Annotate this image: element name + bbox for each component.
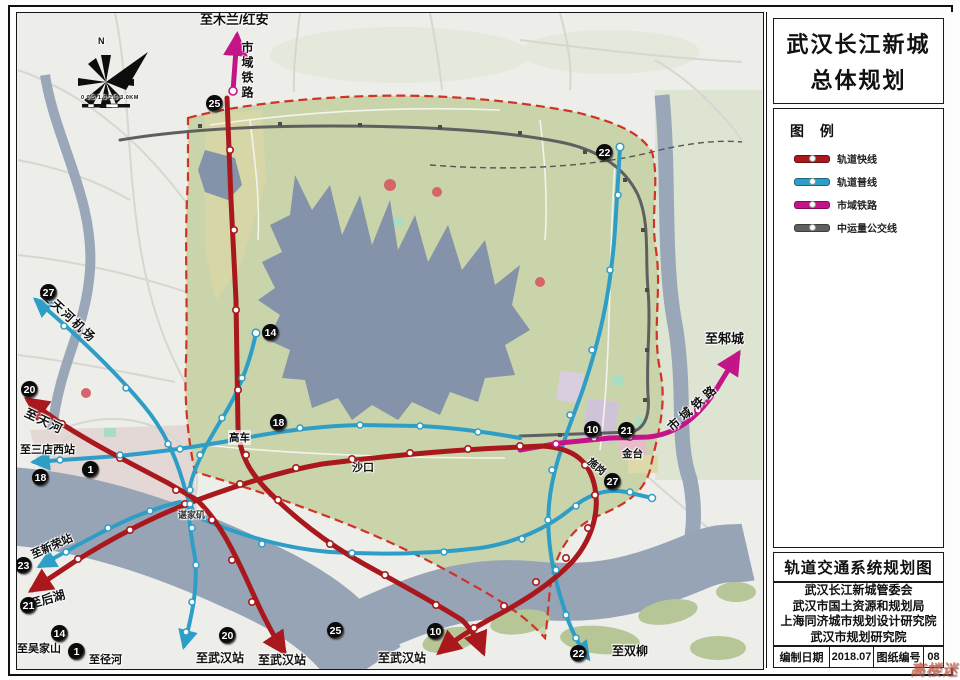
line-badge-25: 25: [206, 95, 223, 112]
legend-label-brt: 中运量公交线: [837, 220, 897, 235]
legend-box: 图 例 轨道快线 轨道普线 市域铁路 中运量公交线: [773, 108, 944, 548]
watermark: 高楼迷: [910, 659, 958, 680]
map-label-chenjiaji: 谌家矶: [178, 508, 205, 521]
map-label-to-wuhan-station-2: 至武汉站: [258, 651, 306, 668]
date-label: 编制日期: [774, 647, 830, 667]
line-badge-27b: 27: [604, 473, 621, 490]
map-label-gaoche: 高车: [228, 430, 251, 445]
legend-label-regional-rail: 市域铁路: [837, 197, 877, 212]
line-badge-22: 22: [596, 144, 613, 161]
line-badge-20: 20: [21, 381, 38, 398]
drawing-title-box: 轨道交通系统规划图: [773, 552, 944, 582]
organizations-box: 武汉长江新城管委会 武汉市国土资源和规划局 上海同济城市规划设计研究院 武汉市规…: [773, 582, 944, 646]
line-badge-1: 1: [82, 461, 99, 478]
line-badge-14b: 14: [51, 625, 68, 642]
map-label-to-sandianxi: 至三店西站: [20, 441, 75, 457]
legend-label-rail-regular: 轨道普线: [837, 174, 877, 189]
map-label-to-shuangliu: 至双柳: [612, 642, 648, 659]
organization-1: 武汉长江新城管委会: [804, 583, 912, 599]
line-badge-10: 10: [584, 421, 601, 438]
map-label-to-jinghe: 至径河: [89, 651, 122, 667]
station-dot-icon: [809, 178, 816, 185]
map-label-to-mulan-hongan: 至木兰/红安: [200, 12, 269, 28]
map-label-jintai: 金台: [622, 446, 643, 461]
line-badge-21: 21: [20, 597, 37, 614]
map-label-to-wuhan-station-3: 至武汉站: [378, 649, 426, 666]
line-badge-10b: 10: [427, 623, 444, 640]
rail-fast-line-swatch: [794, 155, 830, 163]
legend-item-regional-rail: 市域铁路: [794, 197, 943, 212]
rail-regular-line-swatch: [794, 178, 830, 186]
legend-label-rail-fast: 轨道快线: [837, 151, 877, 166]
map-label-shakou: 沙口: [352, 459, 374, 475]
sheet-title-line2: 总体规划: [810, 63, 906, 95]
map-label-regional-rail-n: 市域铁路: [239, 41, 256, 115]
line-badge-21b: 21: [618, 422, 635, 439]
organization-3: 上海同济城市规划设计研究院: [780, 614, 936, 630]
scale-bar: [82, 104, 130, 108]
line-badge-18: 18: [32, 469, 49, 486]
map-label-to-wujiashan: 至吴家山: [17, 640, 61, 656]
map-label-to-zhucheng: 至邾城: [705, 328, 744, 347]
line-badge-22b: 22: [570, 645, 587, 662]
drawing-title: 轨道交通系统规划图: [784, 556, 933, 578]
station-dot-icon: [809, 155, 816, 162]
map-canvas: 至木兰/红安 市域铁路 至邾城 市域铁路 至天河机场 至天河 至三店西站 至新荣…: [16, 12, 764, 670]
line-badge-27: 27: [40, 284, 57, 301]
line-badge-18b: 18: [270, 414, 287, 431]
planning-map-sheet: 至木兰/红安 市域铁路 至邾城 市域铁路 至天河机场 至天河 至三店西站 至新荣…: [0, 0, 960, 680]
organization-2: 武汉市国土资源和规划局: [792, 599, 924, 615]
line-badge-20b: 20: [219, 627, 236, 644]
scale-bar-text: 0 0.5 1.0 2.0 3.0KM: [81, 95, 139, 101]
regional-rail-line-swatch: [794, 201, 830, 209]
line-badge-1b: 1: [68, 643, 85, 660]
title-panel: 武汉长江新城 总体规划 图 例 轨道快线 轨道普线 市域铁路 中运量公交线: [766, 12, 953, 668]
date-value: 2018.07: [830, 647, 874, 667]
legend-item-rail-regular: 轨道普线: [794, 174, 943, 189]
sheet-title-line1: 武汉长江新城: [786, 27, 930, 59]
organization-4: 武汉市规划研究院: [810, 630, 906, 646]
legend-item-brt: 中运量公交线: [794, 220, 943, 235]
legend-title: 图 例: [790, 121, 943, 141]
legend-item-rail-fast: 轨道快线: [794, 151, 943, 166]
sheet-title-box: 武汉长江新城 总体规划: [773, 18, 944, 104]
station-dot-icon: [809, 224, 816, 231]
compass-north-label: N: [98, 36, 105, 46]
map-base-drawing: [16, 12, 764, 670]
line-badge-25b: 25: [327, 622, 344, 639]
line-badge-14: 14: [262, 324, 279, 341]
station-dot-icon: [809, 201, 816, 208]
brt-line-swatch: [794, 224, 830, 232]
map-label-to-wuhan-station-1: 至武汉站: [196, 649, 244, 666]
